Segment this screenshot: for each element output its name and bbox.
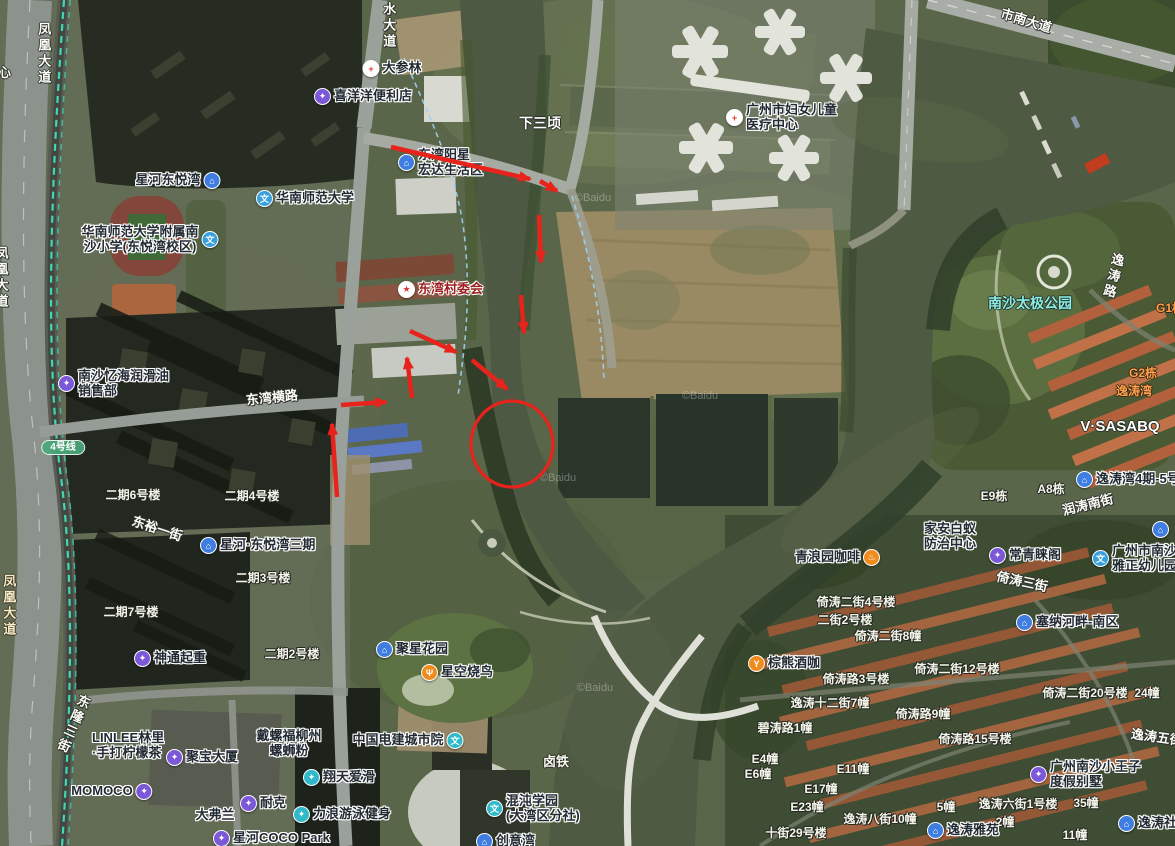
label-text: 4号线 xyxy=(41,440,85,455)
building-label: 二期2号楼 xyxy=(265,648,320,661)
label-text: 倚涛二街20号楼 24幢 xyxy=(1042,687,1159,700)
road-label: 逸涛五街 xyxy=(1130,727,1175,749)
label-text: 喜洋洋便利店 xyxy=(334,89,412,104)
poi-marker[interactable]: ⌂创意湾 xyxy=(476,833,535,846)
label-text: 星河COCO Park xyxy=(233,831,330,846)
poi-label[interactable]: 戴螺福柳州螺蛳粉 xyxy=(256,729,321,758)
label-text: 聚星花园 xyxy=(396,642,448,657)
building-label: E9栋 xyxy=(981,490,1008,503)
label-text: 广州市妇女儿童医疗中心 xyxy=(746,103,837,132)
watermark: ©Baidu xyxy=(575,192,611,204)
label-text: 华南师范大学附属南沙小学(东悦湾校区) xyxy=(81,225,198,254)
shop-icon: ✦ xyxy=(166,749,183,766)
label-text: 南沙太极公园 xyxy=(988,296,1072,312)
poi-marker[interactable]: ✦耐克 xyxy=(240,795,286,812)
building-label: 倚涛二街20号楼 24幢 xyxy=(1042,687,1159,700)
poi-marker[interactable]: ✦力浪游泳健身 xyxy=(293,806,391,823)
poi-marker[interactable]: 文华南师范大学附属南沙小学(东悦湾校区) xyxy=(81,225,218,254)
label-text: ©Baidu xyxy=(540,472,576,484)
poi-marker[interactable]: +大参林 xyxy=(362,60,421,77)
road-label: 凤凰大道 xyxy=(36,22,51,86)
label-text: 逸涛五街 xyxy=(1130,727,1175,749)
poi-marker[interactable]: 文广州市南沙雅正幼儿园 xyxy=(1092,544,1175,573)
poi-label[interactable]: LINLEE林里·手打柠檬茶 xyxy=(92,731,164,760)
shop-icon: ✦ xyxy=(213,830,230,846)
label-text: 倚涛二街12号楼 xyxy=(914,663,999,676)
place-label: V·SASABQ xyxy=(1080,419,1159,436)
sport-icon: ✦ xyxy=(293,806,310,823)
poi-marker[interactable]: ✦常青睐阁 xyxy=(989,547,1061,564)
label-text: 家安白蚁防治中心 xyxy=(924,522,976,551)
building-label: E6幢 xyxy=(745,768,772,781)
label-text: 耐克 xyxy=(260,796,286,811)
poi-marker[interactable]: ✦翔天爱滑 xyxy=(303,769,375,786)
school-icon: 文 xyxy=(256,190,273,207)
building-label: 5幢 xyxy=(937,801,956,814)
label-text: G1栋 xyxy=(1156,302,1175,315)
label-text: 卤铁 xyxy=(543,755,569,770)
building-icon: ⌂ xyxy=(376,641,393,658)
building-icon: ⌂ xyxy=(1076,471,1093,488)
label-text: 倚涛三街 xyxy=(995,570,1049,595)
pharmacy-icon: + xyxy=(362,60,379,77)
building-label: 倚涛二街8幢 xyxy=(855,630,922,643)
building-label: E17幢 xyxy=(804,783,837,796)
label-text: 逸涛湾 xyxy=(1116,385,1152,398)
label-text: E11幢 xyxy=(837,763,870,776)
label-text: 戴螺福柳州螺蛳粉 xyxy=(256,729,321,758)
poi-marker[interactable]: 文中国电建城市院 xyxy=(352,732,463,749)
building-label: 逸涛八街10幢 xyxy=(843,813,916,826)
label-text: 东湾村委会 xyxy=(418,282,483,297)
label-text: ©Baidu xyxy=(577,682,613,694)
label-text: 星河·东悦湾三期 xyxy=(220,538,315,553)
label-text: 凤凰大道 xyxy=(0,246,8,310)
shop-icon: ✦ xyxy=(134,650,151,667)
building-label: G2栋 xyxy=(1129,367,1157,380)
shop-icon: ✦ xyxy=(240,795,257,812)
road-label: 东裕一街 xyxy=(130,514,184,544)
area-label: 卤铁 xyxy=(543,755,569,770)
label-text: 广州市南沙雅正幼儿园 xyxy=(1112,544,1175,573)
poi-marker[interactable]: ✦星河COCO Park xyxy=(213,830,330,846)
poi-marker[interactable]: ⌂聚星花园 xyxy=(376,641,448,658)
label-text: A8栋 xyxy=(1037,483,1064,496)
poi-marker[interactable]: Y棕熊酒咖 xyxy=(748,655,820,672)
coffee-icon: ♨ xyxy=(863,549,880,566)
school-icon: 文 xyxy=(1092,550,1109,567)
label-text: 混沌学园(大湾区分社) xyxy=(506,794,580,823)
poi-marker[interactable]: ✦南沙忆海润滑油销售部 xyxy=(58,369,169,398)
road-label: 凤凰大道 xyxy=(1,574,16,638)
label-text: 逸涛雅苑 xyxy=(947,823,999,838)
building-label: 二期6号楼 xyxy=(106,489,161,502)
label-text: 常青睐阁 xyxy=(1009,548,1061,563)
label-text: 二期3号楼 xyxy=(236,572,291,585)
metro-line-badge[interactable]: 4号线 xyxy=(41,440,85,455)
building-label: 11幢 xyxy=(1063,829,1088,842)
poi-marker[interactable]: ✦神通起重 xyxy=(134,650,206,667)
label-text: 十街29号楼 xyxy=(765,827,826,840)
label-text: LINLEE林里·手打柠檬茶 xyxy=(92,731,164,760)
label-text: E23幢 xyxy=(790,801,823,814)
road-label: 凤凰大道 xyxy=(0,246,8,310)
building-label: 35幢 xyxy=(1073,797,1098,810)
label-text: 滨水大道 xyxy=(381,0,396,50)
label-text: 倚涛路3号楼 xyxy=(823,673,890,686)
label-text: 润涛南街 xyxy=(1061,492,1115,519)
building-label: 逸涛六街1号楼 xyxy=(979,798,1058,811)
building-label: 二街2号楼 xyxy=(818,614,873,627)
poi-marker[interactable]: ✦MOMOCO xyxy=(71,783,152,800)
shop-icon: ✦ xyxy=(1030,766,1047,783)
area-label: 心 xyxy=(0,66,11,81)
building-icon: ⌂ xyxy=(1118,815,1135,832)
building-label: A8栋 xyxy=(1037,483,1064,496)
label-text: 青浪园咖啡 xyxy=(795,550,860,565)
label-text: E6幢 xyxy=(745,768,772,781)
label-text: V·SASABQ xyxy=(1080,419,1159,436)
poi-marker[interactable]: ⌂ xyxy=(1152,521,1172,538)
poi-marker[interactable]: ⌂逸涛社区 xyxy=(1118,815,1175,832)
building-label: 二期7号楼 xyxy=(104,606,159,619)
building-label: E11幢 xyxy=(837,763,870,776)
shop-icon: ✦ xyxy=(989,547,1006,564)
poi-marker[interactable]: ⌂星河东悦湾 xyxy=(135,172,220,189)
label-text: 星空烧鸟 xyxy=(441,665,493,680)
building-label: 倚涛路15号楼 xyxy=(938,733,1011,746)
label-text: 11幢 xyxy=(1063,829,1088,842)
label-text: 东湾横路 xyxy=(245,388,298,408)
building-label: 逸涛十二街7幢 xyxy=(791,697,870,710)
poi-marker[interactable]: ⌂逸涛雅苑 xyxy=(927,822,999,839)
building-label: G1栋 xyxy=(1156,302,1175,315)
road-label: 东隆三街 xyxy=(52,692,91,756)
label-text: 碧涛路1幢 xyxy=(758,722,813,735)
label-text: E4幢 xyxy=(752,753,779,766)
building-label: E4幢 xyxy=(752,753,779,766)
building-icon: ⌂ xyxy=(200,537,217,554)
label-text: 东隆三街 xyxy=(52,692,91,756)
road-label: 润涛南街 xyxy=(1061,492,1115,519)
poi-marker[interactable]: ⌂逸涛湾4期-5号门 xyxy=(1076,471,1175,488)
label-text: 二期2号楼 xyxy=(265,648,320,661)
label-text: 逸涛十二街7幢 xyxy=(791,697,870,710)
gov-marker[interactable]: ★东湾村委会 xyxy=(398,281,483,298)
park-label: 南沙太极公园 xyxy=(988,296,1072,312)
area-label: 下三顷 xyxy=(519,116,561,132)
building-icon: ⌂ xyxy=(927,822,944,839)
shop-icon: ✦ xyxy=(136,783,153,800)
road-label: 市南大道 xyxy=(999,7,1053,36)
label-text: 南沙忆海润滑油销售部 xyxy=(78,369,169,398)
label-text: 倚涛二街4号楼 xyxy=(817,596,896,609)
watermark: ©Baidu xyxy=(540,472,576,484)
label-text: 力浪游泳健身 xyxy=(313,807,391,822)
watermark: ©Baidu xyxy=(577,682,613,694)
label-text: 倚涛路9幢 xyxy=(896,708,951,721)
poi-marker[interactable]: 文华南师范大学 xyxy=(256,190,354,207)
label-text: 凤凰大道 xyxy=(1,574,16,638)
poi-label[interactable]: 大弗兰 xyxy=(195,808,234,823)
poi-marker[interactable]: ✦广州南沙小王子度假别墅 xyxy=(1030,760,1141,789)
label-text: 市南大道 xyxy=(999,7,1053,36)
watermark: ©Baidu xyxy=(682,390,718,402)
gov-icon: ★ xyxy=(398,281,415,298)
building-label: 碧涛路1幢 xyxy=(758,722,813,735)
shop-icon: ✦ xyxy=(58,375,75,392)
building-icon: ⌂ xyxy=(1016,614,1033,631)
label-text: 华南师范大学 xyxy=(276,191,354,206)
poi-marker[interactable]: ✦喜洋洋便利店 xyxy=(314,88,412,105)
label-text: 东裕一街 xyxy=(130,514,184,544)
food-icon: Ψ xyxy=(421,664,438,681)
label-text: 塞纳河畔-南区 xyxy=(1036,615,1118,630)
poi-marker[interactable]: ⌂星河·东悦湾三期 xyxy=(200,537,315,554)
label-text: 凤凰大道 xyxy=(36,22,51,86)
building-label: 倚涛二街12号楼 xyxy=(914,663,999,676)
label-text: E9栋 xyxy=(981,490,1008,503)
school_teal-icon: 文 xyxy=(486,800,503,817)
building-label: 倚涛二街4号楼 xyxy=(817,596,896,609)
building-label: 二期3号楼 xyxy=(236,572,291,585)
label-text: G2栋 xyxy=(1129,367,1157,380)
poi-marker[interactable]: Ψ星空烧鸟 xyxy=(421,664,493,681)
label-text: 广州南沙小王子度假别墅 xyxy=(1050,760,1141,789)
poi-marker[interactable]: ♨青浪园咖啡 xyxy=(795,549,880,566)
label-text: 倚涛二街8幢 xyxy=(855,630,922,643)
label-text: 5幢 xyxy=(937,801,956,814)
label-text: 逸涛六街1号楼 xyxy=(979,798,1058,811)
label-text: 创意湾 xyxy=(496,834,535,846)
label-text: 神通起重 xyxy=(154,651,206,666)
label-text: 逸涛社区 xyxy=(1138,816,1175,831)
building-label: 逸涛湾 xyxy=(1116,385,1152,398)
sport-icon: ✦ xyxy=(303,769,320,786)
road-label: 逸涛路 xyxy=(1099,251,1125,301)
shop-icon: ✦ xyxy=(314,88,331,105)
building-label: 十街29号楼 xyxy=(765,827,826,840)
building-icon: ⌂ xyxy=(1152,521,1169,538)
label-text: 逸涛八街10幢 xyxy=(843,813,916,826)
label-text: MOMOCO xyxy=(71,784,132,799)
label-text: 心 xyxy=(0,66,11,81)
label-text: 下三顷 xyxy=(519,116,561,132)
building-label: 二期4号楼 xyxy=(225,490,280,503)
poi-marker[interactable]: ⌂东湾阳星宏达生活区 xyxy=(398,148,483,177)
building-icon: ⌂ xyxy=(476,833,493,846)
road-label: 倚涛三街 xyxy=(995,570,1049,595)
label-text: 二街2号楼 xyxy=(818,614,873,627)
label-text: 翔天爱滑 xyxy=(323,770,375,785)
label-text: 东湾阳星宏达生活区 xyxy=(418,148,483,177)
label-text: 棕熊酒咖 xyxy=(768,656,820,671)
building-icon: ⌂ xyxy=(204,172,221,189)
building-label: E23幢 xyxy=(790,801,823,814)
building-icon: ⌂ xyxy=(398,154,415,171)
label-text: 35幢 xyxy=(1073,797,1098,810)
school_teal-icon: 文 xyxy=(447,732,464,749)
school-icon: 文 xyxy=(202,231,219,248)
label-text: ©Baidu xyxy=(575,192,611,204)
label-text: 逸涛路 xyxy=(1099,251,1125,301)
label-text: E17幢 xyxy=(804,783,837,796)
label-text: 二期7号楼 xyxy=(104,606,159,619)
label-text: 星河东悦湾 xyxy=(135,173,200,188)
poi-marker[interactable]: ✦聚宝大厦 xyxy=(166,749,238,766)
label-text: ©Baidu xyxy=(682,390,718,402)
road-label: 东湾横路 xyxy=(245,388,298,408)
label-text: 二期6号楼 xyxy=(106,489,161,502)
poi-marker[interactable]: 文混沌学园(大湾区分社) xyxy=(486,794,580,823)
label-text: 倚涛路15号楼 xyxy=(938,733,1011,746)
building-label: 倚涛路9幢 xyxy=(896,708,951,721)
label-text: 大参林 xyxy=(382,61,421,76)
label-text: 中国电建城市院 xyxy=(352,733,443,748)
bar-icon: Y xyxy=(748,655,765,672)
poi-marker[interactable]: +广州市妇女儿童医疗中心 xyxy=(726,103,837,132)
map-canvas[interactable]: 凤凰大道心凤凰大道凤凰大道滨水大道+大参林✦喜洋洋便利店下三顷市南大道+广州市妇… xyxy=(0,0,1175,846)
road-label: 滨水大道 xyxy=(381,0,396,50)
poi-label[interactable]: 家安白蚁防治中心 xyxy=(924,522,976,551)
label-text: 二期4号楼 xyxy=(225,490,280,503)
building-label: 倚涛路3号楼 xyxy=(823,673,890,686)
poi-marker[interactable]: ⌂塞纳河畔-南区 xyxy=(1016,614,1118,631)
label-text: 聚宝大厦 xyxy=(186,750,238,765)
label-text: 大弗兰 xyxy=(195,808,234,823)
hospital-icon: + xyxy=(726,109,743,126)
label-text: 逸涛湾4期-5号门 xyxy=(1096,472,1175,487)
map-labels-layer: 凤凰大道心凤凰大道凤凰大道滨水大道+大参林✦喜洋洋便利店下三顷市南大道+广州市妇… xyxy=(0,0,1175,846)
